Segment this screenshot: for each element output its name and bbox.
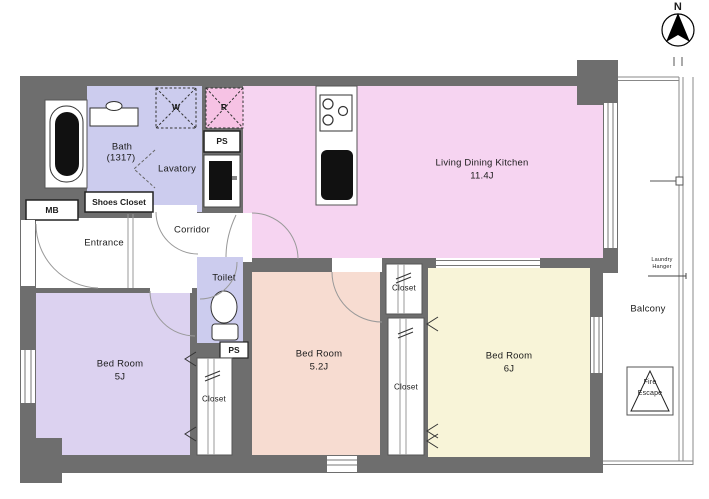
shoes-closet-box [85, 192, 153, 212]
floorplan-page: N Bath (1317) Lavatory W R PS MB Shoes C… [0, 0, 709, 499]
bath-faucet-icon [106, 102, 122, 111]
meter-box [26, 200, 78, 220]
bedroom-5j-floor [36, 293, 190, 455]
north-compass-icon [662, 13, 694, 66]
pipe-space-upper-box [204, 131, 240, 152]
utility-door-icon [209, 161, 232, 200]
kitchen-sink-icon [321, 150, 353, 200]
corner-block [20, 438, 62, 483]
bedroom-5-2j-floor [252, 272, 380, 455]
washer-space-icon [156, 88, 196, 128]
pipe-space-toilet-box [220, 342, 248, 358]
ldk-floor [202, 86, 603, 258]
bathtub-icon [55, 112, 79, 176]
toilet-tank-icon [212, 324, 238, 340]
floorplan-graphic [0, 0, 709, 499]
utility-door-handle [232, 176, 237, 180]
balcony-partition-post [676, 177, 683, 185]
refrigerator-space-icon [206, 88, 243, 128]
corner-pillar [577, 60, 618, 105]
bedroom-6j-floor [428, 268, 590, 457]
